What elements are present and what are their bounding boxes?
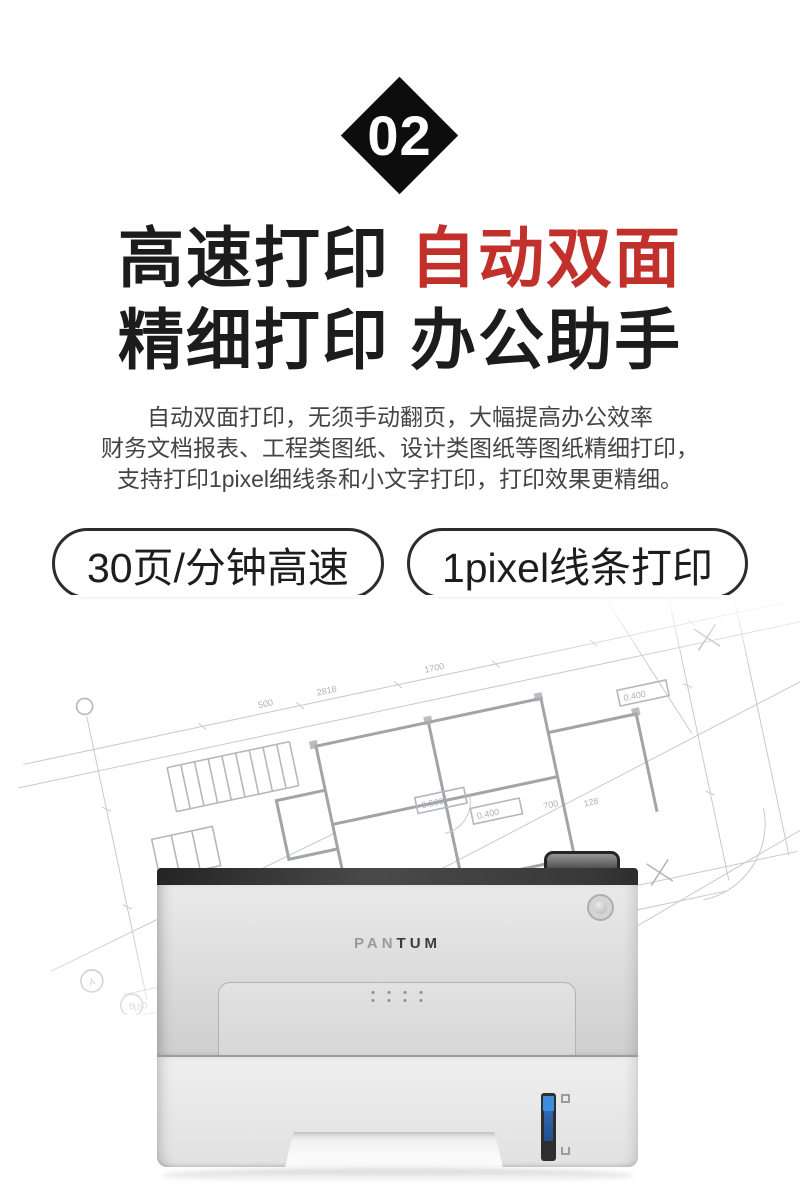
tray-handle-recess	[285, 1132, 503, 1167]
ventilation-dots	[372, 991, 423, 1002]
printer-reflection	[162, 1168, 633, 1183]
printer-front-panel	[218, 982, 576, 1055]
usb-connector	[543, 1096, 554, 1111]
printer-image: PANTUM	[0, 0, 800, 1186]
printer-upper-body: PANTUM	[157, 885, 638, 1055]
usb-port	[541, 1093, 556, 1161]
brand-tum: TUM	[397, 935, 442, 952]
printer-paper-tray	[157, 1057, 638, 1167]
usb-square-icon	[561, 1094, 570, 1103]
promo-page: 02 高速打印自动双面 精细打印 办公助手 自动双面打印，无须手动翻页，大幅提高…	[0, 0, 800, 1186]
power-button-inner	[594, 901, 607, 914]
brand-pan: PAN	[354, 935, 397, 952]
usb-connector-shaft	[544, 1111, 553, 1141]
power-button	[587, 894, 614, 921]
printer-top-bar	[157, 868, 638, 885]
printer-brand-logo: PANTUM	[157, 935, 638, 952]
usb-bracket-icon	[561, 1147, 570, 1155]
